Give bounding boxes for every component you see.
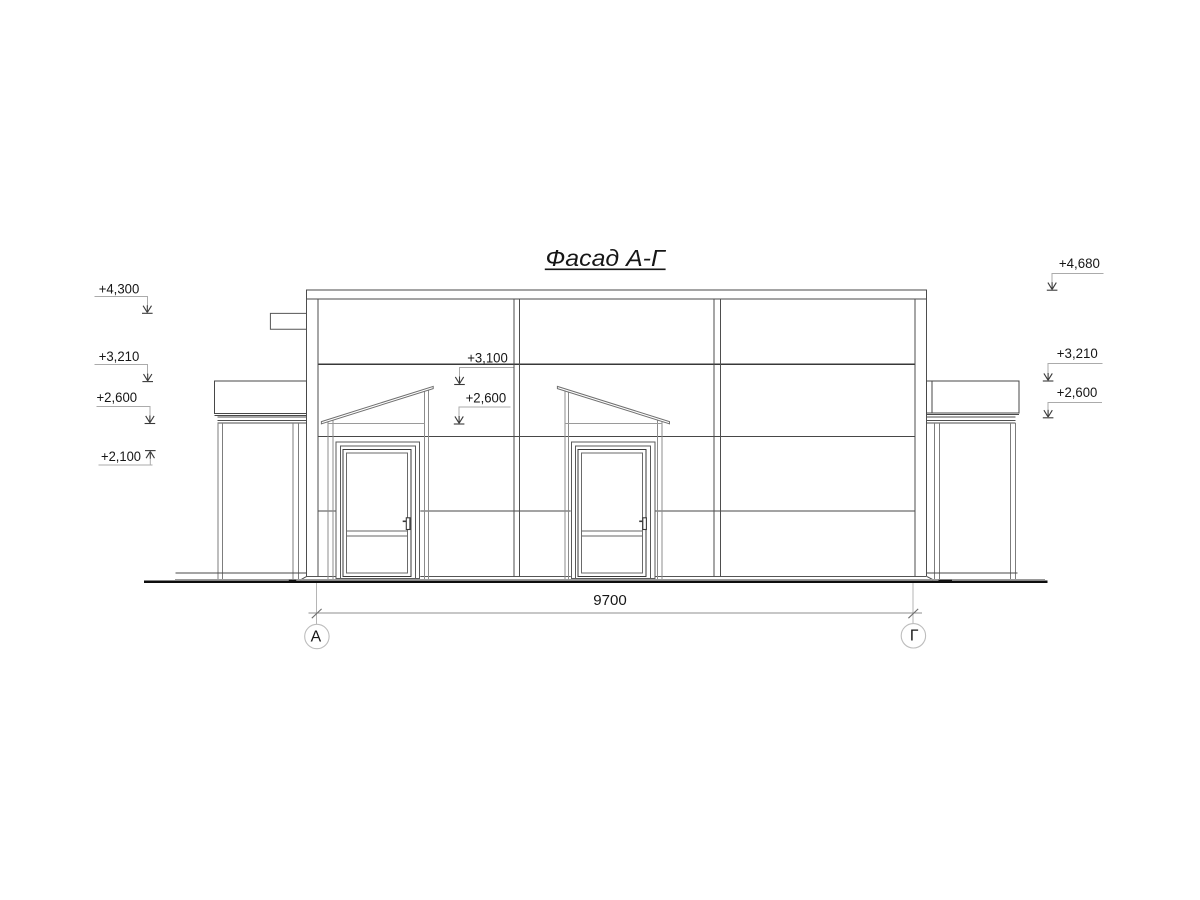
svg-text:+3,210: +3,210 (1057, 346, 1098, 361)
svg-text:+4,300: +4,300 (99, 282, 140, 297)
svg-text:Фасад А-Г: Фасад А-Г (546, 245, 667, 271)
svg-text:+2,600: +2,600 (97, 390, 138, 405)
svg-text:+2,100: +2,100 (101, 449, 141, 464)
svg-text:Г: Г (910, 627, 919, 644)
svg-text:+4,680: +4,680 (1059, 256, 1100, 271)
svg-text:+2,600: +2,600 (1057, 385, 1098, 400)
svg-text:9700: 9700 (593, 593, 627, 609)
svg-text:+3,100: +3,100 (467, 351, 508, 366)
svg-text:А: А (311, 628, 322, 645)
svg-text:+2,600: +2,600 (466, 390, 507, 405)
svg-text:+3,210: +3,210 (99, 349, 140, 364)
